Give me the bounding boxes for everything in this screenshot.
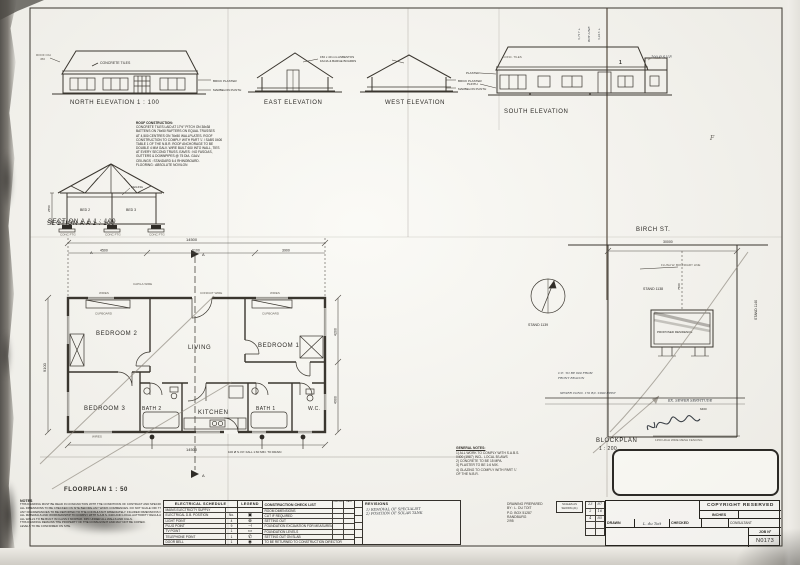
revision-entry: 2) POSITION OF SOLAR TANK xyxy=(363,510,460,516)
plan-windows xyxy=(66,296,326,433)
electrical-item: DOOR BELL xyxy=(164,540,225,544)
checklist-date-cell xyxy=(343,519,354,523)
checklist-date-cell xyxy=(343,535,354,539)
scanned-architectural-drawing-sheet: CONCRETE TILES ROOF O/H 450 BRICK PLASTE… xyxy=(0,0,800,565)
north-tiles-note: CONCRETE TILES xyxy=(100,61,131,65)
date-cell xyxy=(586,529,596,535)
electrical-schedule-table: ELECTRICAL SCHEDULE MAINS ELECTRICITY SU… xyxy=(163,500,238,545)
south-tiles-note: CONC. TILES xyxy=(503,55,522,59)
plot-boundary xyxy=(608,245,737,437)
dim-left: 9100 xyxy=(42,362,47,372)
revision-num-cell xyxy=(355,523,362,530)
dim-right2: 4900 xyxy=(334,396,338,404)
blank-cell xyxy=(701,519,728,528)
south-plaster-note: PLASTER xyxy=(466,71,481,75)
blockplan-drawing: 30000 BIRCH ST. PROPOSED RESIDENCE xyxy=(528,227,768,453)
checklist-item: SETTING OUT ON SLAB xyxy=(263,535,332,539)
room-bedroom2: BEDROOM 2 xyxy=(96,331,137,337)
section-room2-label: BED 3 xyxy=(126,208,136,212)
blank-cell xyxy=(739,511,781,519)
date-cell: 2 xyxy=(586,509,596,515)
bottom-scan-shadow xyxy=(0,548,800,565)
stand-centre-label: STAND 1138 xyxy=(643,287,663,291)
dim-seg1: 4500 xyxy=(100,249,108,253)
electrical-qty: 9 xyxy=(225,524,237,528)
wires-label-2: WIRES xyxy=(270,291,280,295)
checklist-checked-cell xyxy=(332,530,343,534)
checklist-item: FOUNDATION LEVELS xyxy=(263,530,332,534)
revision-num-cell xyxy=(355,538,362,544)
revisions-number-column xyxy=(355,501,363,544)
date-cell xyxy=(586,522,596,528)
south-windows xyxy=(500,72,659,93)
date-cell: 23 xyxy=(586,502,596,508)
servitude-note: EX. SEWER SERVITUDE xyxy=(667,399,713,403)
date-cell xyxy=(596,522,605,528)
construction-checklist-table: CONSTRUCTION CHECK LIST CHECKED DATE ROO… xyxy=(263,500,355,545)
legend-symbol: ◉ xyxy=(238,540,262,544)
north-arrow-compass xyxy=(531,279,565,313)
electrical-item: MAINS ELECTRICITY SUPPLY xyxy=(164,508,225,512)
section-aa-label: SECTION A A 1 : 100 xyxy=(47,221,115,227)
south-svp-note: 100 Ø S.V.P. xyxy=(651,54,672,59)
copyright-cell: COPYRIGHT RESERVED xyxy=(699,501,781,511)
checklist-checked-cell xyxy=(332,519,343,523)
electrical-qty xyxy=(225,508,237,512)
electrical-title: ELECTRICAL SCHEDULE xyxy=(164,501,237,508)
room-kitchen: KITCHEN xyxy=(198,410,229,416)
fascia-note-line2: FACIA & BARGE BOARDS xyxy=(320,59,356,63)
floorplan-label: FLOORPLAN 1 : 50 xyxy=(64,487,128,493)
room-living: LIVING xyxy=(188,345,211,351)
room-bath2: BATH 2 xyxy=(142,406,162,412)
electrical-qty: No. xyxy=(225,513,237,517)
stand-left-label: STAND 1139 xyxy=(528,323,548,327)
dim-seg2: 6100 xyxy=(192,249,200,253)
section-ftg-3: CONC FTG xyxy=(149,233,165,237)
electrical-item: TELEPHONE POINT xyxy=(164,535,225,539)
revisions-main: REVISIONS 1) REMOVAL OF SPECIALIST 2) PO… xyxy=(363,501,460,544)
checklist-checked-cell xyxy=(332,514,343,518)
capila-label: CAPILA WIRE xyxy=(133,282,152,286)
section-ceiling-label: CEILING xyxy=(131,185,144,189)
date-cell: 16 xyxy=(596,509,605,515)
section-height-dim: 2550 xyxy=(47,205,51,212)
checked-label-cell: CHECKED xyxy=(669,519,701,528)
roof-note-line: FLOORING : ABSOLUTE NOVILON xyxy=(136,163,248,167)
blockplan-label: BLOCKPLAN xyxy=(596,438,637,444)
proposed-building: PROPOSED RESIDENCE xyxy=(651,310,713,356)
legend-table: LEGEND ▣ ⊗ ⊣ ▭ ✆ ◉ xyxy=(238,500,263,545)
electrical-item: TV POINT xyxy=(164,529,225,533)
stand-right-label: STAND 1140 xyxy=(754,300,758,320)
general-note-line: OF THE N.B.R. xyxy=(456,472,544,476)
plan-dimensions xyxy=(40,238,470,457)
general-notes: GENERAL NOTES: 1) ALL WORK TO COMPLY WIT… xyxy=(456,446,544,476)
plot-dim-top: 30000 xyxy=(663,240,673,244)
ce-note-line1: C.E. TO BE 600 FROM xyxy=(558,371,593,375)
checklist-col-date: DATE xyxy=(343,501,354,508)
blank-cell xyxy=(606,528,749,547)
wires-label-1: WIRES xyxy=(99,291,109,295)
south-level-3: 5,615 + xyxy=(597,27,601,40)
dim-overall-top: 14500 xyxy=(186,237,198,242)
marker-a-bottom: A xyxy=(202,473,205,478)
west-plinth-note: MARBELON PLINTH xyxy=(458,87,486,91)
checklist-title: CONSTRUCTION CHECK LIST xyxy=(263,503,332,507)
north-elevation-label: NORTH ELEVATION 1 : 100 xyxy=(70,100,160,106)
svp-note: 100 Ø S.V.P. FALL 1:60 MIN. TO DRAIN xyxy=(228,450,281,454)
inches-cell: INCHES xyxy=(699,511,739,519)
conduit-label: CONDUIT WIRE xyxy=(200,291,222,295)
fence-note: 1350 HIGH WIRE MESH FENCING xyxy=(655,438,703,442)
electrical-item: PLUG POINT xyxy=(164,524,225,528)
plan-room-labels: BEDROOM 2 LIVING BEDROOM 1 BEDROOM 3 BAT… xyxy=(84,312,320,417)
notes-panel: NOTES THIS DRAWING MUST BE READ IN CONJU… xyxy=(20,499,161,545)
scales-line2: SHOWN (A1) xyxy=(557,507,582,511)
flush-note: FLUSH W. BOUNDARY LINE xyxy=(661,263,700,267)
street-label: BIRCH ST. xyxy=(636,227,670,233)
checklist-checked-cell xyxy=(332,509,343,513)
marker-a-left: A xyxy=(90,250,93,255)
checklist-item: CUT IF REQUIRED xyxy=(263,514,332,518)
dim-overall-bottom: 14500 xyxy=(186,447,198,452)
scales-box: SCALES AS SHOWN (A1) xyxy=(556,501,583,513)
revision-num-cell xyxy=(355,516,362,523)
dim-right1: 4200 xyxy=(334,328,338,336)
cupboard-label-2: CUPBOARD xyxy=(262,312,280,316)
fascia-note: 150 x 40 mm ASBESTOS FACIA & BARGE BOARD… xyxy=(303,55,404,63)
marker-a-top: A xyxy=(202,252,205,257)
revisions-table: REVISIONS 1) REMOVAL OF SPECIALIST 2) PO… xyxy=(355,500,461,545)
checklist-date-cell xyxy=(343,509,354,513)
date-cell: 85 xyxy=(596,516,605,522)
electrical-item: LIGHT POINT xyxy=(164,519,225,523)
plot-dim-side: 7500 xyxy=(677,283,681,290)
legend-title: LEGEND xyxy=(238,501,262,508)
prepared-line: 2/95 xyxy=(507,519,555,523)
ce-note-line2: FRONT BEACON xyxy=(557,376,585,380)
section-ftg-1: CONC FTG xyxy=(60,233,76,237)
roof-construction-note: ROOF CONSTRUCTION: CONCRETE TILES LAID A… xyxy=(136,121,260,167)
room-bath1: BATH 1 xyxy=(256,406,276,412)
revision-num-cell xyxy=(355,508,362,515)
checklist-item: ROOM DIMENSIONS xyxy=(263,509,332,513)
sewer-note: SEWER CONN. 170 R/L ±800 DEEP xyxy=(560,391,616,395)
checklist-col-checked: CHECKED xyxy=(332,501,343,508)
west-elevation-label: WEST ELEVATION xyxy=(385,100,445,106)
east-elevation-label: EAST ELEVATION xyxy=(264,100,322,106)
floorplan-drawing: 14500 4500 6100 3900 9100 4200 4900 1450… xyxy=(40,237,470,489)
south-mark-1: 1 xyxy=(619,60,622,66)
electrical-qty: 1 xyxy=(225,529,237,533)
signature xyxy=(647,416,740,436)
blockplan-dim-small: 6460 xyxy=(700,407,707,411)
south-level-1: 5,717 + xyxy=(577,27,581,40)
right-scan-margin xyxy=(784,0,800,565)
north-plinth-note: MARBELON PLINTH xyxy=(213,88,241,92)
notes-line: LEVELS TO BE CONFIRMED ON SITE. xyxy=(20,525,150,529)
checklist-date-cell xyxy=(343,514,354,518)
checklist-checked-cell xyxy=(332,524,343,528)
dim-seg3: 3900 xyxy=(282,249,290,253)
north-elevation-drawing: CONCRETE TILES ROOF O/H 450 BRICK PLASTE… xyxy=(36,51,241,106)
checklist-item: SETTING OUT xyxy=(263,519,332,523)
south-elevation-drawing: CONC. TILES PLASTER PLINTH 1 100 Ø S.V.P… xyxy=(466,26,715,142)
prepared-by-block: DRAWING PREPARED BY : L. DU TOIT P.O. BO… xyxy=(507,502,555,523)
drawn-value-cell: L. du Toit xyxy=(634,519,669,528)
electrical-item: ELECTRICAL D.B. POSITION xyxy=(164,513,225,517)
date-cell: 87 xyxy=(596,502,605,508)
room-bedroom1: BEDROOM 1 xyxy=(258,343,299,349)
south-plinth-note: PLINTH xyxy=(467,82,478,86)
date-cell: 4 xyxy=(586,516,596,522)
south-elevation-label: SOUTH ELEVATION xyxy=(504,109,568,115)
section-room1-label: BED 2 xyxy=(80,208,90,212)
bottom-tables: ELECTRICAL SCHEDULE MAINS ELECTRICITY SU… xyxy=(163,500,461,545)
plan-annotations: WIRES WIRES WIRES CAPILA WIRE CONDUIT WI… xyxy=(90,250,281,478)
room-bedroom3: BEDROOM 3 xyxy=(84,406,125,412)
cupboard-label-1: CUPBOARD xyxy=(95,312,113,316)
west-elevation-drawing: BRICK PLASTER MARBELON PLINTH WEST ELEVA… xyxy=(360,55,486,106)
north-windows xyxy=(70,76,185,93)
revision-num-cell xyxy=(355,530,362,537)
room-wc: W.C. xyxy=(308,406,320,412)
plan-section-line xyxy=(191,250,199,478)
stray-f-mark: F xyxy=(709,135,715,142)
revision-num-cell xyxy=(355,501,362,508)
north-plaster-note: BRICK PLASTER xyxy=(213,79,238,83)
north-roofoh-note-2: 450 xyxy=(40,57,45,61)
date-grid: 2387 216 485 xyxy=(585,501,605,536)
building-label: PROPOSED RESIDENCE xyxy=(657,330,692,334)
electrical-qty: 4 xyxy=(225,519,237,523)
checklist-footer: TO BE RETURNED TO CONSTRUCTION DIRECTOR xyxy=(263,540,354,544)
electrical-qty: 1 xyxy=(225,540,237,544)
drawn-label-cell: DRAWN xyxy=(606,519,634,528)
checklist-item: FOUNDATION EXCAVATION FOR MEASUREMENT xyxy=(263,524,332,528)
date-cell xyxy=(596,529,605,535)
checklist-checked-cell xyxy=(332,535,343,539)
checklist-date-cell xyxy=(343,524,354,528)
general-notes-title: GENERAL NOTES: xyxy=(456,446,544,450)
wires-label-3: WIRES xyxy=(92,435,102,439)
south-level-2: BDY LINE xyxy=(587,26,591,43)
approval-box xyxy=(612,449,779,496)
blank-cell xyxy=(606,501,699,519)
checklist-date-cell xyxy=(343,530,354,534)
section-ftg-2: CONC FTG xyxy=(105,233,121,237)
page-curl-shadow xyxy=(730,525,800,565)
electrical-qty: 1 xyxy=(225,534,237,538)
